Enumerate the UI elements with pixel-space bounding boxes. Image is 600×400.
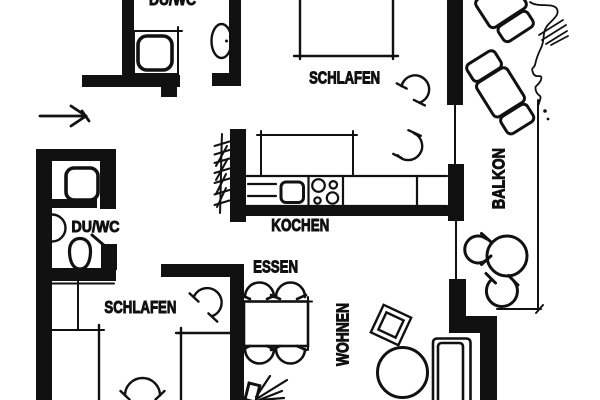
svg-text:DU/WC: DU/WC	[72, 219, 120, 236]
svg-text:SCHLAFEN: SCHLAFEN	[309, 68, 380, 88]
svg-text:BALKON: BALKON	[489, 148, 509, 209]
svg-text:KOCHEN: KOCHEN	[271, 215, 329, 235]
svg-text:DU/WC: DU/WC	[149, 0, 196, 9]
svg-text:WOHNEN: WOHNEN	[333, 303, 353, 366]
svg-text:ESSEN: ESSEN	[253, 257, 298, 277]
svg-text:SCHLAFEN: SCHLAFEN	[104, 297, 176, 317]
